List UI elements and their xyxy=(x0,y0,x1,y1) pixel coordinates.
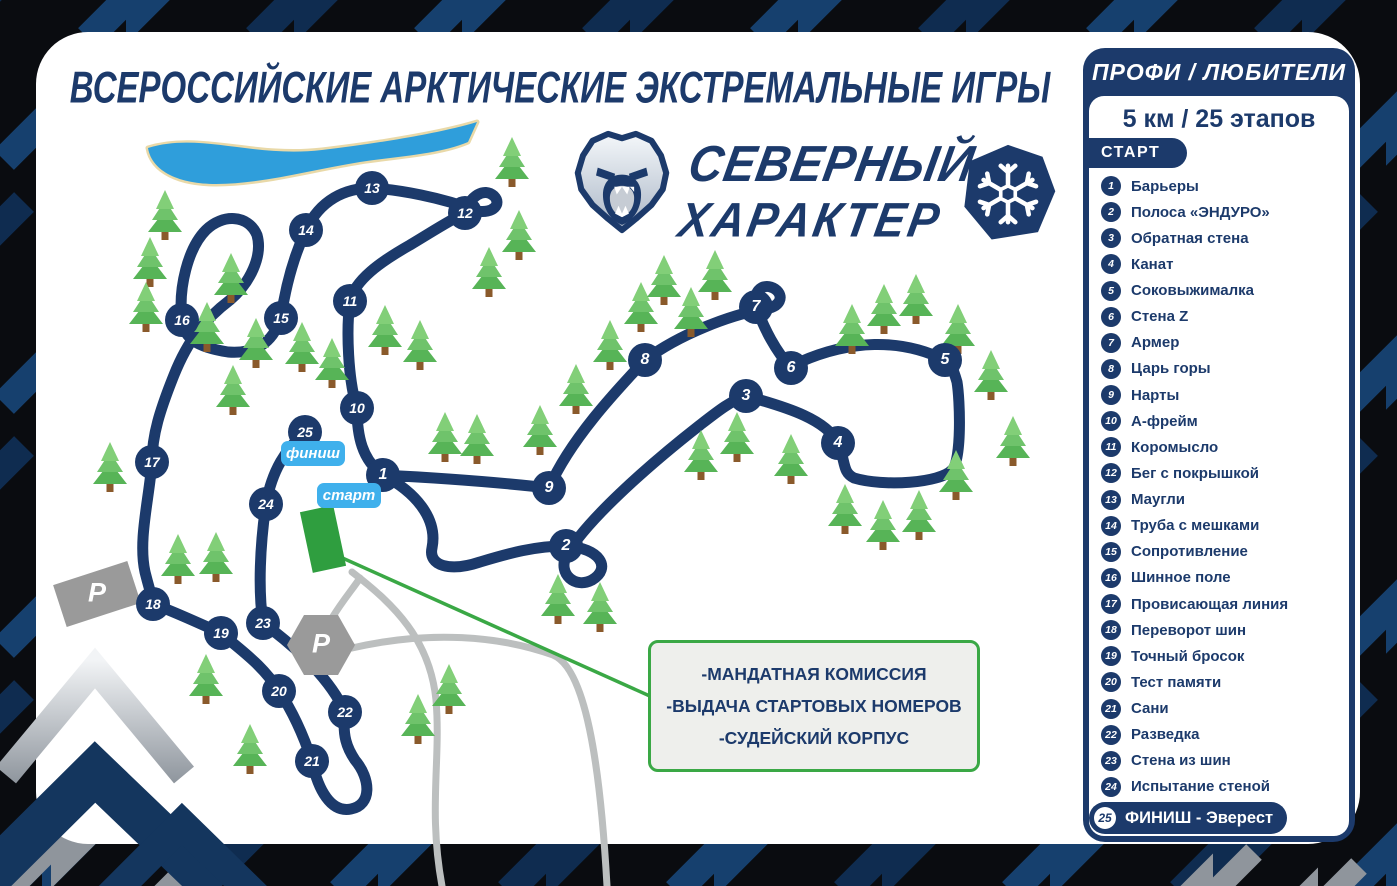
stage-row: 19Точный бросок xyxy=(1101,643,1345,669)
start-badge: СТАРТ xyxy=(1083,138,1187,168)
stage-number: 13 xyxy=(1101,490,1121,510)
stage-number: 8 xyxy=(1101,359,1121,379)
logo-line2: ХАРАКТЕР xyxy=(675,195,968,244)
stages-sidebar: ПРОФИ / ЛЮБИТЕЛИ 5 км / 25 этапов СТАРТ … xyxy=(1083,48,1355,842)
checkpoint-24: 24 xyxy=(249,487,283,521)
distance-label: 5 км / 25 этапов xyxy=(1089,105,1349,134)
logo-wordmark: СЕВЕРНЫЙ ХАРАКТЕР xyxy=(675,138,978,244)
stage-label: Стена из шин xyxy=(1131,752,1231,769)
stage-number: 18 xyxy=(1101,620,1121,640)
stage-label: Царь горы xyxy=(1131,360,1211,377)
stage-number: 11 xyxy=(1101,437,1121,457)
checkpoint-10: 10 xyxy=(340,391,374,425)
stage-label: Барьеры xyxy=(1131,178,1199,195)
stage-number: 16 xyxy=(1101,568,1121,588)
stage-number: 22 xyxy=(1101,725,1121,745)
stage-row: 14Труба с мешками xyxy=(1101,513,1345,539)
checkpoint-2: 2 xyxy=(549,529,583,563)
checkpoint-23: 23 xyxy=(246,606,280,640)
stage-number: 14 xyxy=(1101,516,1121,536)
stage-row: 1Барьеры xyxy=(1101,173,1345,199)
stage-number: 12 xyxy=(1101,463,1121,483)
stage-label: Точный бросок xyxy=(1131,648,1244,665)
stage-number: 6 xyxy=(1101,307,1121,327)
checkpoint-11: 11 xyxy=(333,284,367,318)
stage-number: 23 xyxy=(1101,751,1121,771)
sidebar-panel: 5 км / 25 этапов СТАРТ 1Барьеры2Полоса «… xyxy=(1089,96,1349,836)
parking-p-label-left: P xyxy=(88,577,106,608)
parking-p-label-right: P xyxy=(312,628,330,659)
stage-number: 21 xyxy=(1101,699,1121,719)
stage-row: 4Канат xyxy=(1101,251,1345,277)
stage-row: 10А-фрейм xyxy=(1101,408,1345,434)
stage-row: 24Испытание стеной xyxy=(1101,774,1345,800)
info-line-1: -МАНДАТНАЯ КОМИССИЯ xyxy=(701,664,926,685)
checkpoint-4: 4 xyxy=(821,426,855,460)
stage-row: 8Царь горы xyxy=(1101,356,1345,382)
stage-row: 15Сопротивление xyxy=(1101,539,1345,565)
checkpoint-20: 20 xyxy=(262,674,296,708)
stage-number: 20 xyxy=(1101,672,1121,692)
stage-label: Сани xyxy=(1131,700,1169,717)
stage-row: 18Переворот шин xyxy=(1101,617,1345,643)
stage-label: Разведка xyxy=(1131,726,1200,743)
checkpoint-3: 3 xyxy=(729,379,763,413)
stage-number: 17 xyxy=(1101,594,1121,614)
stage-list: 1Барьеры2Полоса «ЭНДУРО»3Обратная стена4… xyxy=(1101,173,1345,800)
stage-number: 2 xyxy=(1101,202,1121,222)
stage-row: 16Шинное поле xyxy=(1101,565,1345,591)
stage-label: Провисающая линия xyxy=(1131,596,1288,613)
stage-row: 21Сани xyxy=(1101,696,1345,722)
checkpoint-18: 18 xyxy=(136,587,170,621)
poster-title: ВСЕРОССИЙСКИЕ АРКТИЧЕСКИЕ ЭКСТРЕМАЛЬНЫЕ … xyxy=(55,62,1065,113)
checkpoint-22: 22 xyxy=(328,695,362,729)
stage-label: Нарты xyxy=(1131,387,1179,404)
checkpoint-15: 15 xyxy=(264,301,298,335)
stage-label: Полоса «ЭНДУРО» xyxy=(1131,204,1270,221)
snowflake-badge-icon xyxy=(958,142,1058,246)
logo-line1: СЕВЕРНЫЙ xyxy=(685,138,979,189)
checkpoint-9: 9 xyxy=(532,471,566,505)
stage-label: А-фрейм xyxy=(1131,413,1198,430)
info-line-3: -СУДЕЙСКИЙ КОРПУС xyxy=(719,728,909,749)
info-line-2: -ВЫДАЧА СТАРТОВЫХ НОМЕРОВ xyxy=(666,696,961,717)
stage-row: 20Тест памяти xyxy=(1101,669,1345,695)
stage-row: 6Стена Z xyxy=(1101,304,1345,330)
stage-row: 13Маугли xyxy=(1101,487,1345,513)
start-tag: старт xyxy=(317,483,381,508)
checkpoint-5: 5 xyxy=(928,343,962,377)
finish-number: 25 xyxy=(1094,807,1116,829)
checkpoint-16: 16 xyxy=(165,303,199,337)
stage-label: Шинное поле xyxy=(1131,569,1231,586)
stage-label: Бег с покрышкой xyxy=(1131,465,1259,482)
stage-label: Сопротивление xyxy=(1131,543,1248,560)
checkpoint-8: 8 xyxy=(628,343,662,377)
info-box: -МАНДАТНАЯ КОМИССИЯ -ВЫДАЧА СТАРТОВЫХ НО… xyxy=(648,640,980,772)
finish-tag: финиш xyxy=(281,441,345,466)
stage-label: Стена Z xyxy=(1131,308,1188,325)
stage-label: Канат xyxy=(1131,256,1173,273)
stage-row: 11Коромысло xyxy=(1101,434,1345,460)
stage-label: Соковыжималка xyxy=(1131,282,1254,299)
checkpoint-14: 14 xyxy=(289,213,323,247)
stage-label: Тест памяти xyxy=(1131,674,1221,691)
finish-label: ФИНИШ - Эверест xyxy=(1125,809,1273,828)
arctic-games-course-map-poster: { "title": "ВСЕРОССИЙСКИЕ АРКТИЧЕСКИЕ ЭК… xyxy=(0,0,1397,886)
bear-emblem-icon xyxy=(570,130,674,240)
stage-number: 10 xyxy=(1101,411,1121,431)
stage-row: 7Армер xyxy=(1101,330,1345,356)
checkpoint-13: 13 xyxy=(355,171,389,205)
stage-number: 4 xyxy=(1101,254,1121,274)
stage-number: 24 xyxy=(1101,777,1121,797)
checkpoint-12: 12 xyxy=(448,196,482,230)
sidebar-header: ПРОФИ / ЛЮБИТЕЛИ xyxy=(1083,48,1355,96)
stage-label: Коромысло xyxy=(1131,439,1218,456)
stage-row: 22Разведка xyxy=(1101,722,1345,748)
stage-number: 5 xyxy=(1101,281,1121,301)
stage-label: Маугли xyxy=(1131,491,1185,508)
stage-row: 2Полоса «ЭНДУРО» xyxy=(1101,199,1345,225)
stage-number: 9 xyxy=(1101,385,1121,405)
stage-number: 7 xyxy=(1101,333,1121,353)
stage-row: 12Бег с покрышкой xyxy=(1101,460,1345,486)
stage-number: 19 xyxy=(1101,646,1121,666)
stage-row: 17Провисающая линия xyxy=(1101,591,1345,617)
stage-label: Труба с мешками xyxy=(1131,517,1259,534)
stage-number: 1 xyxy=(1101,176,1121,196)
stage-label: Обратная стена xyxy=(1131,230,1249,247)
stage-number: 15 xyxy=(1101,542,1121,562)
checkpoint-19: 19 xyxy=(204,616,238,650)
checkpoint-6: 6 xyxy=(774,351,808,385)
stage-row: 3Обратная стена xyxy=(1101,225,1345,251)
stage-row: 5Соковыжималка xyxy=(1101,278,1345,304)
checkpoint-21: 21 xyxy=(295,744,329,778)
stage-row: 23Стена из шин xyxy=(1101,748,1345,774)
stage-label: Испытание стеной xyxy=(1131,778,1270,795)
stage-number: 3 xyxy=(1101,228,1121,248)
finish-pill: 25 ФИНИШ - Эверест xyxy=(1089,802,1287,834)
stage-label: Переворот шин xyxy=(1131,622,1246,639)
stage-row: 9Нарты xyxy=(1101,382,1345,408)
stage-label: Армер xyxy=(1131,334,1179,351)
checkpoint-17: 17 xyxy=(135,445,169,479)
checkpoint-7: 7 xyxy=(739,290,773,324)
